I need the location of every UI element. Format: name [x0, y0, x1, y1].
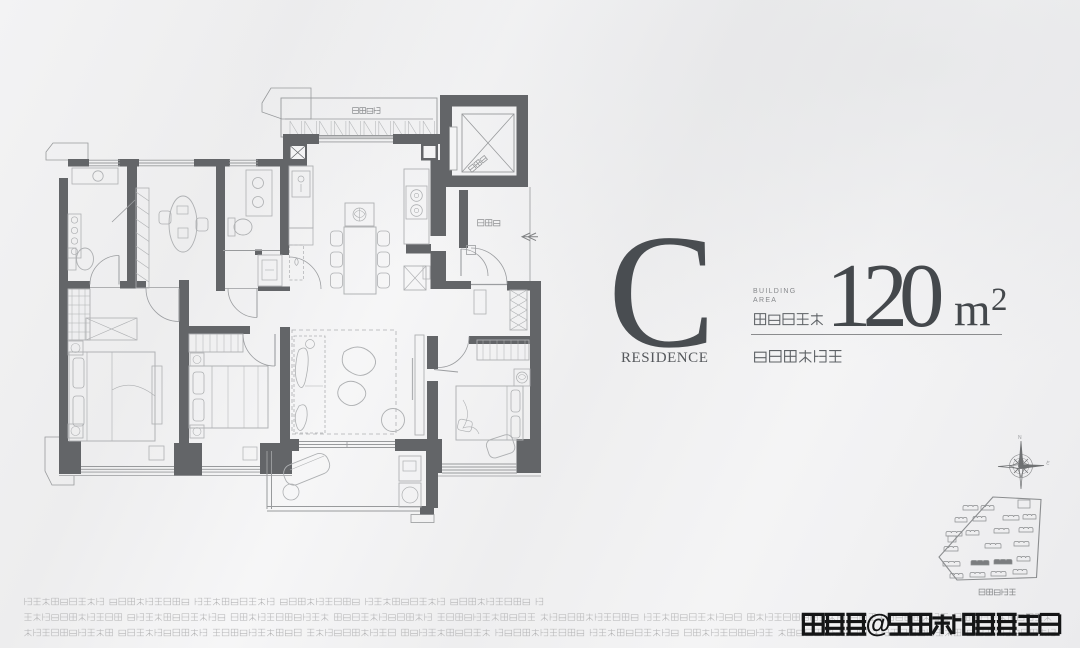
- svg-text:N: N: [1018, 435, 1022, 441]
- svg-text:@: @: [866, 608, 891, 638]
- svg-text:E: E: [1046, 460, 1051, 467]
